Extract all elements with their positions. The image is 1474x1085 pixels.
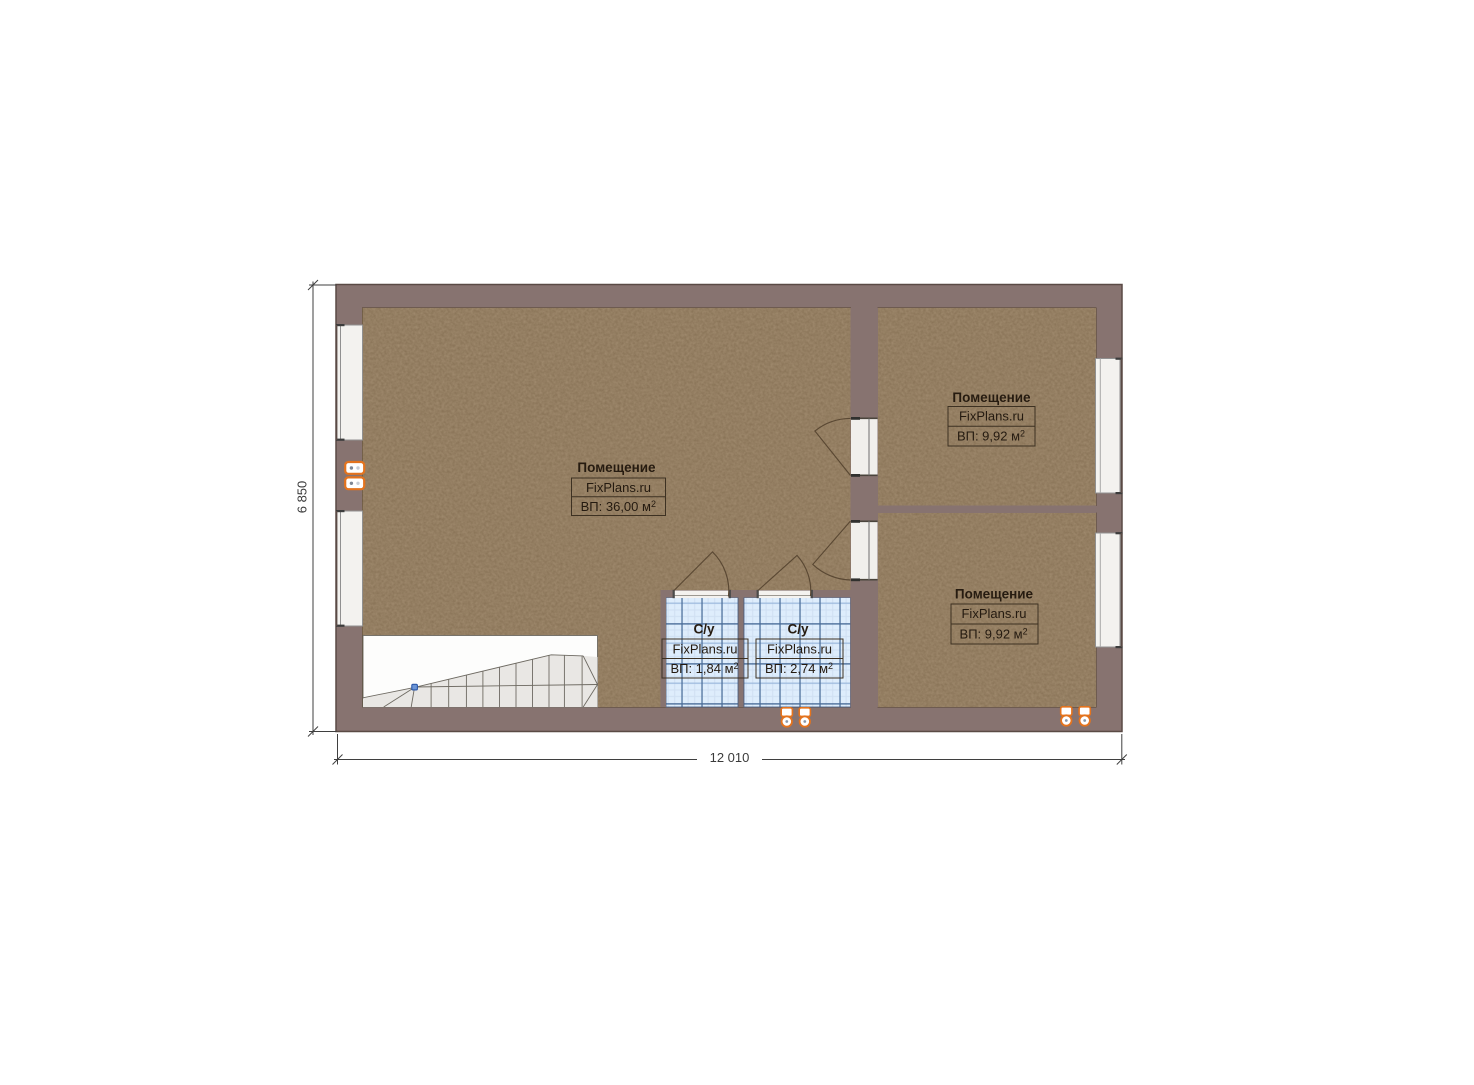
svg-text:FixPlans.ru: FixPlans.ru: [586, 480, 651, 495]
svg-text:Помещение: Помещение: [577, 460, 656, 475]
svg-text:FixPlans.ru: FixPlans.ru: [961, 606, 1026, 621]
svg-text:FixPlans.ru: FixPlans.ru: [767, 641, 832, 656]
svg-text:С/у: С/у: [787, 622, 809, 637]
svg-text:FixPlans.ru: FixPlans.ru: [959, 409, 1024, 424]
svg-text:ВП: 1,84 м2: ВП: 1,84 м2: [670, 661, 738, 676]
svg-text:FixPlans.ru: FixPlans.ru: [672, 641, 737, 656]
svg-text:ВП: 9,92 м2: ВП: 9,92 м2: [960, 626, 1028, 641]
svg-text:ВП: 2,74 м2: ВП: 2,74 м2: [765, 661, 833, 676]
svg-text:ВП: 9,92 м2: ВП: 9,92 м2: [957, 428, 1025, 443]
svg-text:12 010: 12 010: [710, 750, 750, 765]
svg-text:ВП: 36,00 м2: ВП: 36,00 м2: [581, 499, 656, 514]
svg-text:6 850: 6 850: [295, 481, 310, 514]
svg-text:Помещение: Помещение: [952, 390, 1031, 405]
svg-text:С/у: С/у: [693, 622, 715, 637]
svg-text:Помещение: Помещение: [955, 587, 1034, 602]
